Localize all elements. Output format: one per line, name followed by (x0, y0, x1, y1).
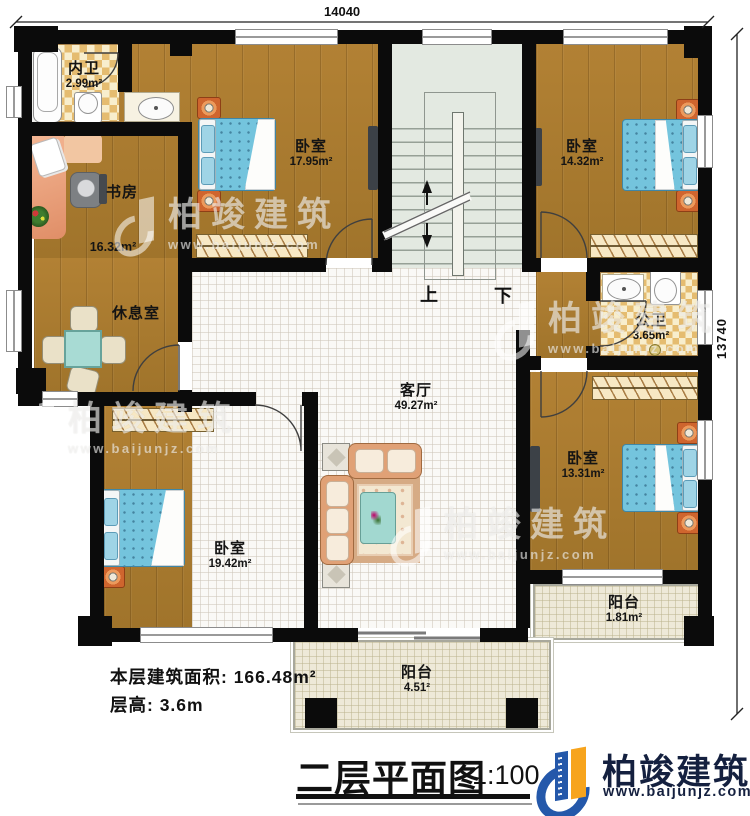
wall (18, 392, 42, 406)
wall (304, 392, 318, 628)
room-label-balcony-bottom: 阳台 4.51² (401, 664, 433, 696)
dimension-right: 13740 (714, 318, 729, 359)
room-area: 4.51² (401, 682, 433, 696)
wall (170, 44, 192, 56)
window (697, 115, 713, 168)
room-area: 49.27m² (395, 400, 438, 414)
tv (530, 446, 540, 512)
wall (178, 258, 326, 272)
room-area: 13.31m² (562, 468, 605, 482)
wall (587, 258, 712, 272)
bed-sheet (245, 119, 275, 190)
wall (372, 258, 392, 272)
room-label-bedroom-bottom-right: 卧室 13.31m² (562, 450, 605, 482)
pillow (683, 480, 697, 508)
sliding-door (358, 633, 480, 638)
logo-orange-tower (571, 747, 586, 800)
room-name: 卧室 (209, 540, 252, 558)
watermark-logo-icon (16, 400, 58, 456)
wall (480, 628, 528, 642)
room-name: 休息室 (112, 305, 160, 323)
wall (118, 44, 132, 92)
note-floor-area: 本层建筑面积: 166.48m² (110, 664, 317, 689)
sofa-cushion (387, 449, 416, 473)
toilet (650, 268, 681, 305)
room-area: 3.65m² (633, 330, 669, 344)
room-name: 卧室 (562, 450, 605, 468)
desk-chair (70, 172, 102, 208)
window (422, 29, 492, 45)
tea-table (64, 330, 102, 368)
pillow (201, 125, 215, 153)
floor-drain (649, 344, 661, 356)
stair-rail (452, 112, 464, 276)
window (140, 627, 273, 643)
room-area: 2.99m² (66, 78, 102, 92)
room-name: 卧室 (290, 138, 333, 156)
room-label-study-area: 16.32m² (90, 240, 137, 255)
dimension-top: 14040 (324, 4, 360, 19)
room-area: 1.81m² (606, 612, 642, 626)
wardrobe (196, 234, 308, 258)
desk-return (64, 135, 102, 163)
tv (368, 126, 378, 190)
room-name: 阳台 (401, 664, 433, 682)
window (697, 420, 713, 480)
wall (90, 392, 104, 642)
pillow (201, 157, 215, 185)
bed (622, 119, 700, 191)
pillow (104, 532, 118, 560)
floor-plan-canvas: 内卫 2.99m² 书房 16.32m² 休息室 卧室 17.95m² 卧室 1… (0, 0, 750, 816)
floor-living-upper (192, 268, 536, 372)
room-area: 14.32m² (561, 156, 604, 170)
bed (101, 489, 185, 567)
balcony-pillar (506, 698, 538, 728)
room-label-inner-bath: 内卫 2.99m² (66, 60, 102, 92)
window (42, 391, 78, 407)
coffee-table (360, 492, 396, 544)
toilet (74, 92, 102, 123)
drawing-scale: 1:100 (472, 760, 540, 791)
nightstand-lamp (197, 190, 221, 212)
pillow (683, 157, 697, 185)
window (697, 290, 713, 345)
wall-corner-block (78, 616, 112, 646)
wall (586, 272, 600, 301)
wardrobe (590, 234, 698, 258)
room-label-bedroom-bottom-left: 卧室 19.42m² (209, 540, 252, 572)
sofa (320, 475, 354, 565)
room-name: 书房 (106, 184, 138, 202)
window (6, 86, 22, 118)
window (6, 290, 22, 352)
bed (622, 444, 700, 512)
wall (178, 122, 192, 342)
side-table (322, 443, 350, 471)
pillow (683, 449, 697, 477)
wall-corner-block (684, 616, 714, 646)
bathtub (33, 47, 62, 123)
stairs-down-label: 下 (494, 282, 512, 308)
sink (138, 97, 174, 120)
pillow (104, 498, 118, 526)
bed (198, 118, 276, 191)
wardrobe (592, 376, 698, 400)
nightstand-lamp (676, 190, 700, 212)
wall (522, 258, 541, 272)
room-label-public-bath: 公卫 3.65m² (633, 312, 669, 344)
sofa-cushion (355, 449, 384, 473)
room-label-living: 客厅 49.27m² (395, 382, 438, 414)
room-label-bedroom-top: 卧室 17.95m² (290, 138, 333, 170)
brand-url: www.baijunjz.com (603, 784, 750, 800)
bed-sheet (151, 490, 184, 566)
sofa-cushion (326, 508, 349, 534)
note-floor-height: 层高: 3.6m (110, 692, 204, 717)
balcony-pillar (305, 698, 337, 728)
room-name: 公卫 (633, 312, 669, 330)
wall (78, 392, 256, 406)
room-area: 19.42m² (209, 558, 252, 572)
title-underline (296, 794, 530, 799)
window (235, 29, 338, 45)
pillow (683, 125, 697, 153)
bed-sheet (655, 445, 675, 511)
bed-sheet (655, 120, 675, 190)
wall (522, 44, 536, 260)
room-area: 17.95m² (290, 156, 333, 170)
stairs-up-label: 上 (420, 281, 438, 307)
room-name: 阳台 (606, 594, 642, 612)
chair (70, 306, 98, 332)
chair (100, 336, 126, 364)
room-name: 卧室 (561, 138, 604, 156)
room-area: 16.32m² (90, 240, 137, 255)
room-label-study: 书房 (106, 184, 138, 202)
wall (587, 356, 712, 370)
sofa (348, 443, 422, 479)
sofa-cushion (326, 535, 349, 561)
title-underline-thin (298, 803, 532, 805)
wall (32, 122, 192, 136)
logo-blue-tower (555, 751, 568, 801)
sink (607, 278, 641, 300)
window (562, 569, 663, 585)
room-label-balcony-right: 阳台 1.81m² (606, 594, 642, 626)
nightstand-lamp (197, 97, 221, 119)
brand-logo-icon (538, 746, 596, 812)
wall (302, 392, 318, 406)
sofa-cushion (326, 481, 349, 507)
wardrobe (112, 408, 214, 432)
room-name: 内卫 (66, 60, 102, 78)
floor-study-lounge (34, 258, 178, 392)
nightstand-lamp (101, 566, 125, 588)
window (563, 29, 668, 45)
room-label-bedroom-top-right: 卧室 14.32m² (561, 138, 604, 170)
room-name: 客厅 (395, 382, 438, 400)
wall (378, 44, 392, 258)
room-label-lounge: 休息室 (112, 305, 160, 323)
